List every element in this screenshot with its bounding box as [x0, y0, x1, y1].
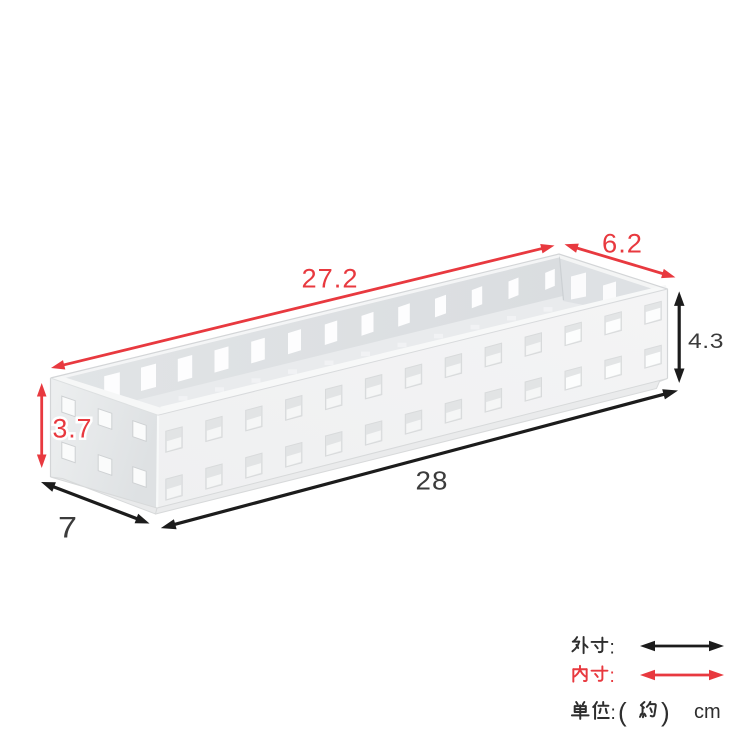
svg-text:6.2: 6.2 — [602, 229, 643, 259]
svg-text:cm: cm — [694, 701, 721, 723]
svg-text:3.7: 3.7 — [53, 414, 93, 444]
svg-text:28: 28 — [416, 466, 449, 496]
svg-text::: : — [610, 666, 615, 687]
svg-text:7: 7 — [58, 512, 77, 545]
svg-text:(: ( — [618, 697, 627, 727]
svg-text:): ) — [661, 697, 670, 727]
svg-text::: : — [610, 638, 615, 659]
svg-text::: : — [611, 703, 616, 724]
svg-text:4.3: 4.3 — [688, 330, 724, 353]
svg-text:27.2: 27.2 — [302, 264, 359, 294]
